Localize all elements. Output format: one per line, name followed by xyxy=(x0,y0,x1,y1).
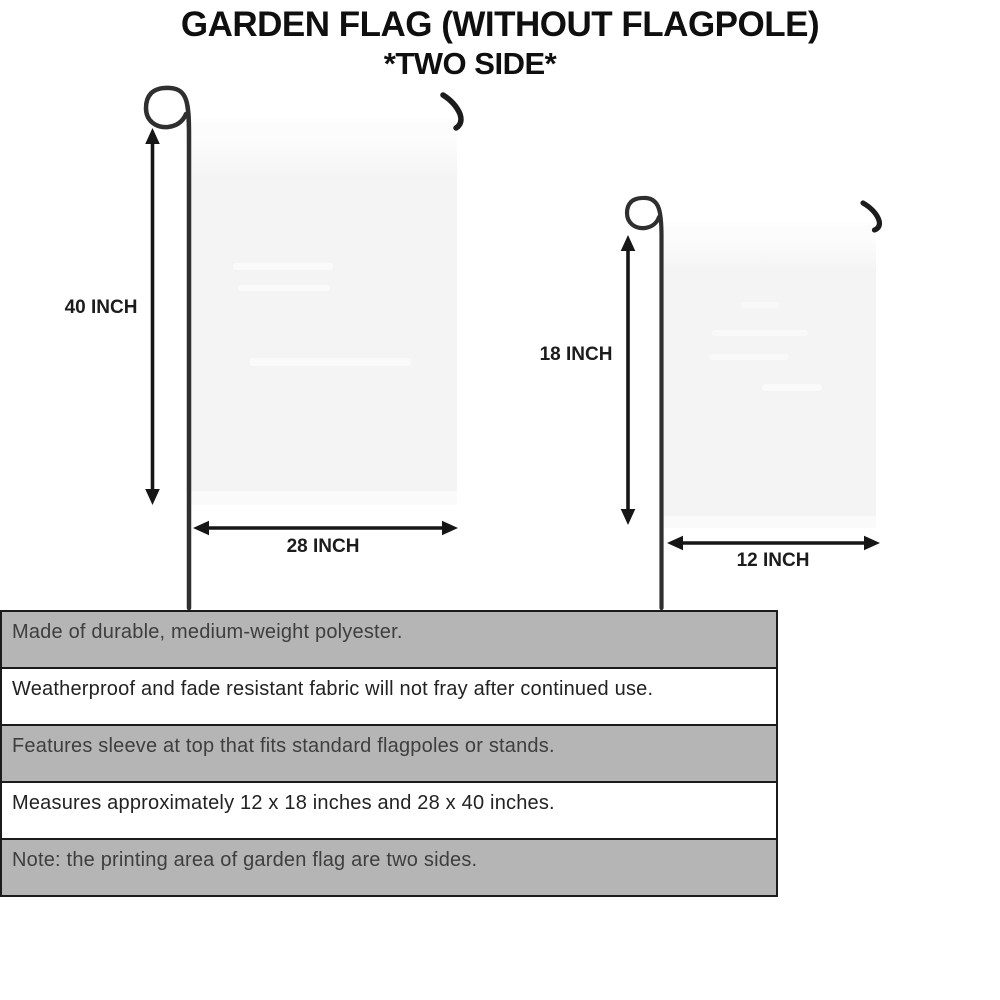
garden-flag-size-chart: GARDEN FLAG (WITHOUT FLAGPOLE) *TWO SIDE… xyxy=(0,0,1000,1000)
small-flag-height-label: 18 INCH xyxy=(496,344,656,366)
feature-row-weatherproof: Weatherproof and fade resistant fabric w… xyxy=(0,667,778,726)
small-flagpole-icon xyxy=(627,198,662,608)
large-width-arrow xyxy=(193,521,458,535)
large-flag-fabric xyxy=(191,118,457,505)
small-height-arrow xyxy=(621,235,636,525)
feature-row-note: Note: the printing area of garden flag a… xyxy=(0,838,778,897)
large-flag-height-label: 40 INCH xyxy=(41,297,161,319)
feature-row-measurements: Measures approximately 12 x 18 inches an… xyxy=(0,781,778,840)
large-flag-group xyxy=(145,88,461,608)
feature-row-material: Made of durable, medium-weight polyester… xyxy=(0,610,778,669)
small-flag-width-label: 12 INCH xyxy=(693,550,853,572)
small-width-arrow xyxy=(667,536,880,550)
feature-list: Made of durable, medium-weight polyester… xyxy=(0,610,778,897)
small-flag-fabric xyxy=(664,222,876,528)
large-flag-width-label: 28 INCH xyxy=(243,536,403,558)
feature-row-sleeve: Features sleeve at top that fits standar… xyxy=(0,724,778,783)
small-flag-group xyxy=(621,198,880,608)
